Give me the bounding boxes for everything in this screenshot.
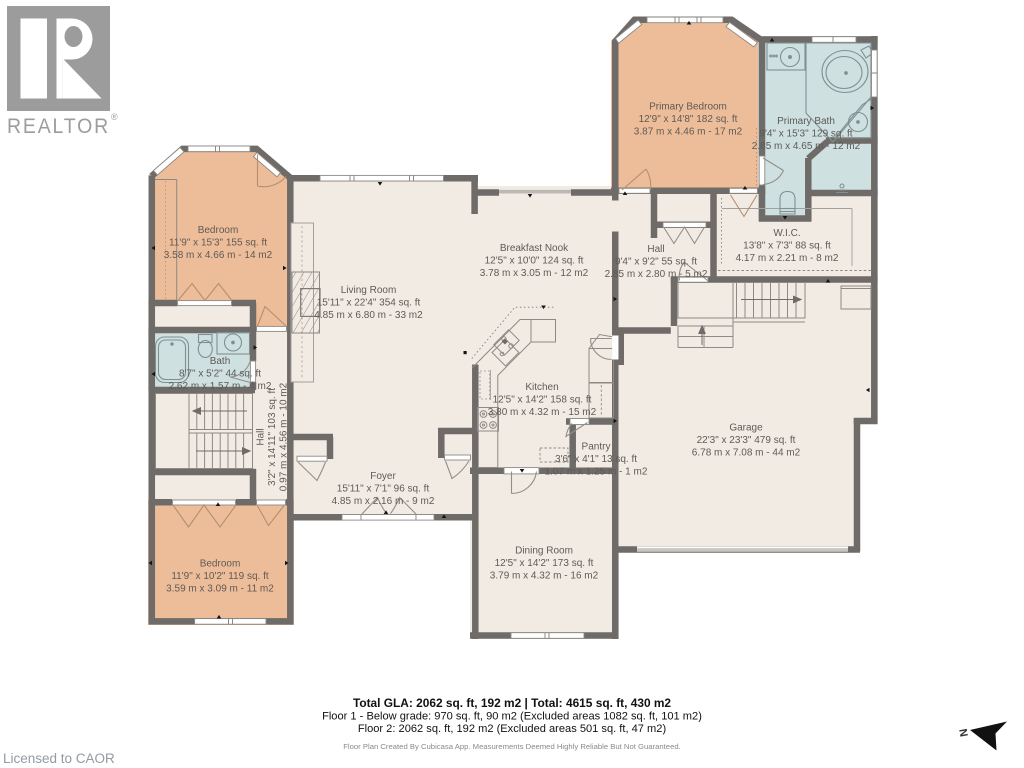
- svg-text:4.17 m x 2.21 m - 8 m2: 4.17 m x 2.21 m - 8 m2: [736, 253, 839, 264]
- svg-text:Dining Room: Dining Room: [515, 546, 573, 557]
- svg-text:Pantry: Pantry: [582, 442, 611, 453]
- svg-text:Total GLA: 2062 sq. ft, 192 m2: Total GLA: 2062 sq. ft, 192 m2 | Total: …: [353, 696, 671, 710]
- svg-text:Bath: Bath: [210, 356, 231, 367]
- svg-text:0.97 m x 4.56 m - 10 m2: 0.97 m x 4.56 m - 10 m2: [279, 382, 290, 491]
- svg-text:Floor Plan Created By Cubicasa: Floor Plan Created By Cubicasa App. Meas…: [343, 742, 681, 751]
- svg-text:12'9" x 14'8" 182 sq. ft: 12'9" x 14'8" 182 sq. ft: [639, 114, 738, 125]
- svg-text:9'4" x 9'2" 55 sq. ft: 9'4" x 9'2" 55 sq. ft: [615, 257, 697, 268]
- svg-text:Breakfast Nook: Breakfast Nook: [500, 243, 569, 254]
- svg-text:9'4" x 15'3" 129 sq. ft: 9'4" x 15'3" 129 sq. ft: [759, 129, 852, 140]
- svg-text:22'3" x 23'3" 479 sq. ft: 22'3" x 23'3" 479 sq. ft: [697, 435, 796, 446]
- svg-text:4.85 m x 2.16 m - 9 m2: 4.85 m x 2.16 m - 9 m2: [332, 496, 435, 507]
- svg-text:12'5" x 14'2" 173 sq. ft: 12'5" x 14'2" 173 sq. ft: [495, 558, 594, 569]
- svg-text:3.80 m x 4.32 m - 15 m2: 3.80 m x 4.32 m - 15 m2: [488, 407, 597, 418]
- svg-text:3.87 m x 4.46 m - 17 m2: 3.87 m x 4.46 m - 17 m2: [634, 127, 743, 138]
- svg-text:6.78 m x 7.08 m - 44 m2: 6.78 m x 7.08 m - 44 m2: [692, 448, 801, 459]
- svg-text:4.85 m x 6.80 m - 33 m2: 4.85 m x 6.80 m - 33 m2: [314, 310, 423, 321]
- svg-text:2.85 m x 4.65 m - 12 m2: 2.85 m x 4.65 m - 12 m2: [752, 141, 861, 152]
- svg-text:Floor 1 - Below grade: 970 sq.: Floor 1 - Below grade: 970 sq. ft, 90 m2…: [322, 711, 702, 723]
- svg-text:Licensed to CAOR: Licensed to CAOR: [3, 751, 115, 766]
- svg-text:3.79 m x 4.32 m - 16 m2: 3.79 m x 4.32 m - 16 m2: [490, 571, 599, 582]
- svg-text:12'5" x 14'2" 158 sq. ft: 12'5" x 14'2" 158 sq. ft: [493, 395, 592, 406]
- svg-text:3.78 m x 3.05 m - 12 m2: 3.78 m x 3.05 m - 12 m2: [480, 268, 589, 279]
- svg-text:3.59 m x 3.09 m - 11 m2: 3.59 m x 3.09 m - 11 m2: [166, 584, 274, 595]
- svg-text:3'6" x 4'1" 13 sq. ft: 3'6" x 4'1" 13 sq. ft: [555, 454, 637, 465]
- svg-text:12'5" x 10'0" 124 sq. ft: 12'5" x 10'0" 124 sq. ft: [485, 256, 584, 267]
- svg-text:13'8" x 7'3" 88 sq. ft: 13'8" x 7'3" 88 sq. ft: [743, 241, 831, 252]
- svg-text:3'2" x 14'11" 103 sq. ft: 3'2" x 14'11" 103 sq. ft: [267, 388, 278, 486]
- svg-text:Floor 2: 2062 sq. ft, 192 m2 (: Floor 2: 2062 sq. ft, 192 m2 (Excluded a…: [358, 723, 666, 735]
- svg-text:11'9" x 10'2" 119 sq. ft: 11'9" x 10'2" 119 sq. ft: [171, 571, 268, 582]
- svg-text:8'7" x 5'2" 44 sq. ft: 8'7" x 5'2" 44 sq. ft: [179, 369, 261, 380]
- svg-text:Living Room: Living Room: [341, 285, 397, 296]
- svg-text:15'11" x 7'1" 96 sq. ft: 15'11" x 7'1" 96 sq. ft: [337, 484, 430, 495]
- svg-text:1.07 m x 1.25 m - 1 m2: 1.07 m x 1.25 m - 1 m2: [545, 467, 648, 478]
- svg-text:Hall: Hall: [647, 244, 664, 255]
- svg-text:Hall: Hall: [256, 428, 267, 445]
- svg-text:®: ®: [111, 112, 118, 122]
- svg-text:11'9" x 15'3" 155 sq. ft: 11'9" x 15'3" 155 sq. ft: [169, 238, 267, 249]
- svg-text:15'11" x 22'4" 354 sq. ft: 15'11" x 22'4" 354 sq. ft: [317, 298, 421, 309]
- svg-text:2.85 m x 2.80 m - 5 m2: 2.85 m x 2.80 m - 5 m2: [605, 269, 708, 280]
- svg-text:REALTOR: REALTOR: [7, 114, 110, 138]
- svg-text:Foyer: Foyer: [370, 471, 396, 482]
- svg-text:W.I.C.: W.I.C.: [773, 228, 800, 239]
- svg-text:Bedroom: Bedroom: [200, 559, 241, 570]
- svg-text:Primary Bedroom: Primary Bedroom: [649, 102, 727, 113]
- svg-text:3.58 m x 4.66 m - 14 m2: 3.58 m x 4.66 m - 14 m2: [164, 250, 273, 261]
- svg-text:2.62 m x 1.57 m - 4 m2: 2.62 m x 1.57 m - 4 m2: [169, 381, 272, 392]
- svg-text:Kitchen: Kitchen: [525, 382, 558, 393]
- svg-text:Primary Bath: Primary Bath: [777, 116, 835, 127]
- svg-text:Bedroom: Bedroom: [198, 225, 239, 236]
- svg-text:Garage: Garage: [729, 423, 763, 434]
